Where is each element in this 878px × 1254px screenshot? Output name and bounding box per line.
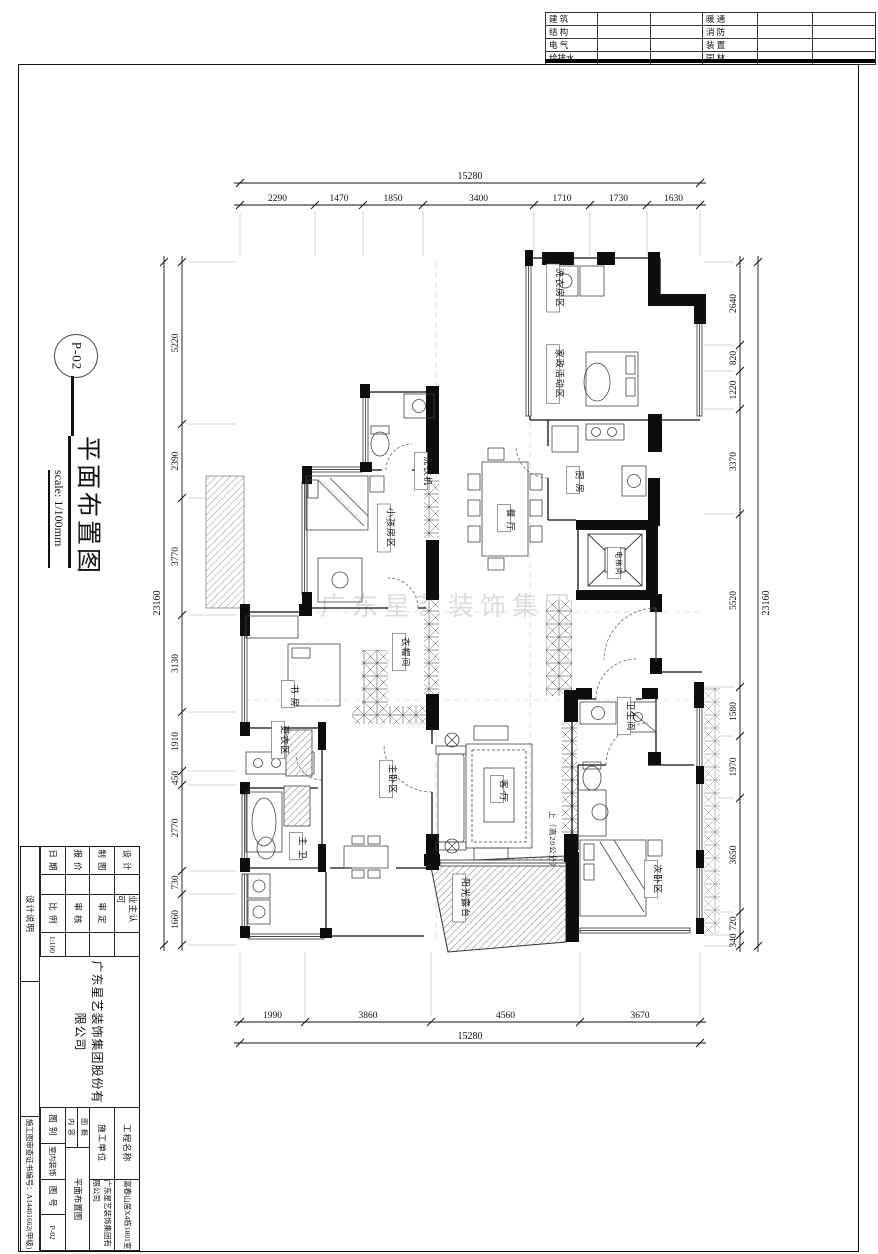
room-label: 次卧区 (653, 864, 664, 894)
drawing-number-value: P-02 (41, 1215, 65, 1250)
dimension-total: 15280 (458, 171, 483, 182)
room-label: 电梯间 (615, 551, 624, 575)
tb-value: 1:100 (40, 933, 65, 957)
tb-label: 施工单位 (91, 1108, 115, 1180)
dimension-label: 1910 (171, 732, 181, 751)
room-label: 阳光露台 (461, 878, 472, 918)
tb-label: 图 概 (77, 1108, 89, 1148)
company-name: 广东星艺装饰集团股份有限公司 (40, 957, 139, 1108)
dimension-label: 730 (171, 875, 181, 890)
tb-label: 日 期 (40, 847, 65, 875)
tb-label: 审 定 (90, 895, 115, 933)
dimension-label: 1970 (729, 757, 739, 776)
title-block: 设 计 制 图 报 价 日 期 业主认可 审 定 审 核 比 例 1:100 广… (20, 846, 140, 1252)
dimension-label: 1990 (263, 1011, 282, 1021)
room-label: 厨 房 (575, 471, 586, 494)
room-label: 上（高20公分） (548, 811, 558, 872)
room-label: 餐 厅 (506, 509, 517, 532)
room-label: 洗衣房区 (555, 268, 566, 308)
room-label: 更衣区 (280, 725, 291, 755)
dimension-label: 1580 (729, 702, 739, 721)
room-label: 主卧区 (388, 764, 399, 794)
tb-value (90, 933, 115, 957)
certificate-number: 施工图审查证书编号：A14401662(甲级) (21, 1117, 39, 1251)
room-label: 主 卫 (298, 837, 309, 860)
dimension-total: 23160 (761, 591, 772, 616)
tb-label: 业主认可 (114, 895, 139, 933)
tb-label: 工程名称 (115, 1108, 139, 1180)
dimension-label: 340 (729, 933, 739, 948)
room-label: 洗衣机 (423, 456, 434, 486)
dimension-label: 3770 (171, 547, 181, 566)
dimension-label: 2640 (729, 294, 739, 313)
dimension-label: 1730 (609, 194, 628, 204)
room-label: 小孩房区 (386, 508, 397, 548)
dimension-total: 15280 (458, 1031, 483, 1042)
room-label: 衣帽间 (401, 637, 412, 667)
dimension-label: 1710 (553, 194, 572, 204)
tb-value (65, 933, 90, 957)
tb-label: 内 容 (66, 1108, 77, 1148)
watermark: 广东星艺装饰集团 (320, 592, 576, 621)
tb-label: 审 核 (65, 895, 90, 933)
dimension-label: 1220 (729, 380, 739, 399)
tb-value (114, 933, 139, 957)
drawing-content: 平面布置图 (66, 1148, 90, 1250)
dimension-label: 720 (729, 916, 739, 931)
drawing-sheet: 建 筑 暖 通 结 构 消 防 电 气 装 置 给排水 园 林 P-02 平面布… (0, 0, 878, 1254)
dimension-label: 2770 (171, 818, 181, 837)
dimension-total: 23160 (152, 591, 163, 616)
dimension-label: 5520 (729, 591, 739, 610)
dimension-label: 1660 (171, 910, 181, 929)
room-label: 客 厅 (499, 780, 510, 803)
dimension-label: 1850 (384, 194, 403, 204)
dimension-label: 3130 (171, 654, 181, 673)
tb-label: 比 例 (40, 895, 65, 933)
drawing-category: 室内装饰 (41, 1144, 65, 1180)
dimension-label: 3860 (359, 1011, 378, 1021)
dimension-label: 450 (171, 771, 181, 786)
tb-label: 图 别 (41, 1108, 65, 1144)
room-label: 卫生间 (626, 701, 637, 731)
room-label: 家政活动区 (555, 349, 566, 399)
dimension-label: 2290 (268, 194, 287, 204)
project-name: 富春山居X4栋1801室 (115, 1180, 139, 1251)
tb-label: 图 号 (41, 1180, 65, 1216)
dimension-label: 2390 (171, 451, 181, 470)
builder-name: 广东星艺装饰集团有限公司 (91, 1180, 115, 1251)
dimension-label: 3650 (729, 845, 739, 864)
dimension-label: 1470 (330, 194, 349, 204)
tb-label: 制 图 (90, 847, 115, 875)
dimension-label: 3400 (469, 194, 488, 204)
notes-strip-label: 设计说明 (21, 847, 39, 982)
tb-label: 报 价 (65, 847, 90, 875)
dimension-label: 5220 (171, 333, 181, 352)
dimension-label: 3370 (729, 452, 739, 471)
dimension-label: 3670 (631, 1011, 650, 1021)
room-label: 书 房 (290, 685, 301, 708)
dimension-label: 1630 (664, 194, 683, 204)
tb-label: 设 计 (114, 847, 139, 875)
dimension-label: 820 (729, 351, 739, 366)
dimension-label: 4560 (496, 1011, 515, 1021)
